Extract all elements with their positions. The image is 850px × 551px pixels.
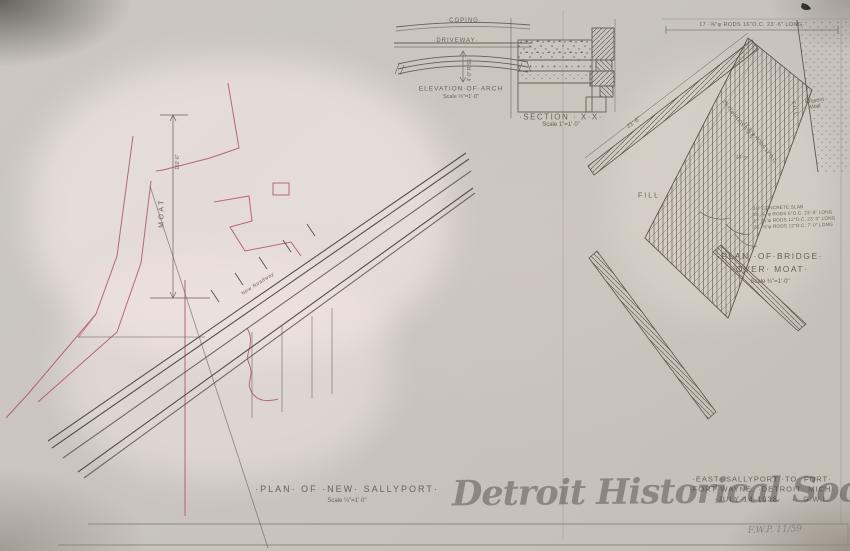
bridge-plan-title-line1: ·PLAN ·OF·BRIDGE·: [717, 251, 823, 261]
moat-label: MOAT: [159, 198, 166, 228]
drawing-sheet: ·COPING· ·DRIVEWAY· 4'·0" RISE ELEVATION…: [0, 0, 850, 551]
moat-dimension: 110'·6": [175, 154, 181, 169]
bridge-top-rod-note: 17 ·⅝"φ RODS 16"O.C. 23'·6" LONG·: [699, 22, 805, 28]
catalog-note: F.W.P. 11/59: [748, 524, 802, 536]
bridge-notes-block: 10" CONCRETE SLAB 25 ·⅝"φ RODS 6"O.C. 23…: [753, 203, 836, 231]
arch-elevation-drawing: [394, 18, 532, 118]
arch-elevation-scale: Scale ½"=1'·0": [443, 94, 479, 100]
corner-ink-mark: [801, 3, 811, 10]
sallyport-plan-scale: Scale ¼"=1'·0": [327, 498, 366, 504]
sallyport-plan-title: ·PLAN· OF ·NEW· SALLYPORT·: [255, 484, 439, 494]
watermark-text: Detroit Historical Society: [452, 469, 850, 515]
section-xx-drawing: [518, 19, 615, 112]
section-xx-title: ·SECTION · X·X·: [519, 113, 603, 122]
coping-label: ·COPING·: [446, 18, 482, 24]
sallyport-dimension-lines: [78, 115, 210, 337]
rise-label: 4'·0" RISE: [467, 58, 473, 81]
linework: [0, 0, 850, 551]
driveway-label: ·DRIVEWAY·: [433, 38, 478, 44]
sallyport-plan-drawing: [6, 83, 475, 548]
section-xx-scale: Scale 1"=1'·0": [542, 122, 580, 128]
fill-label: FILL: [638, 193, 660, 200]
arch-elevation-title: ELEVATION·OF·ARCH: [419, 86, 503, 93]
bridge-plan-scale: Scale ¾"=1'·0": [750, 279, 789, 285]
sallyport-existing-walls: [6, 83, 301, 516]
bridge-plan-title-line2: ·OVER· MOAT·: [732, 264, 809, 274]
